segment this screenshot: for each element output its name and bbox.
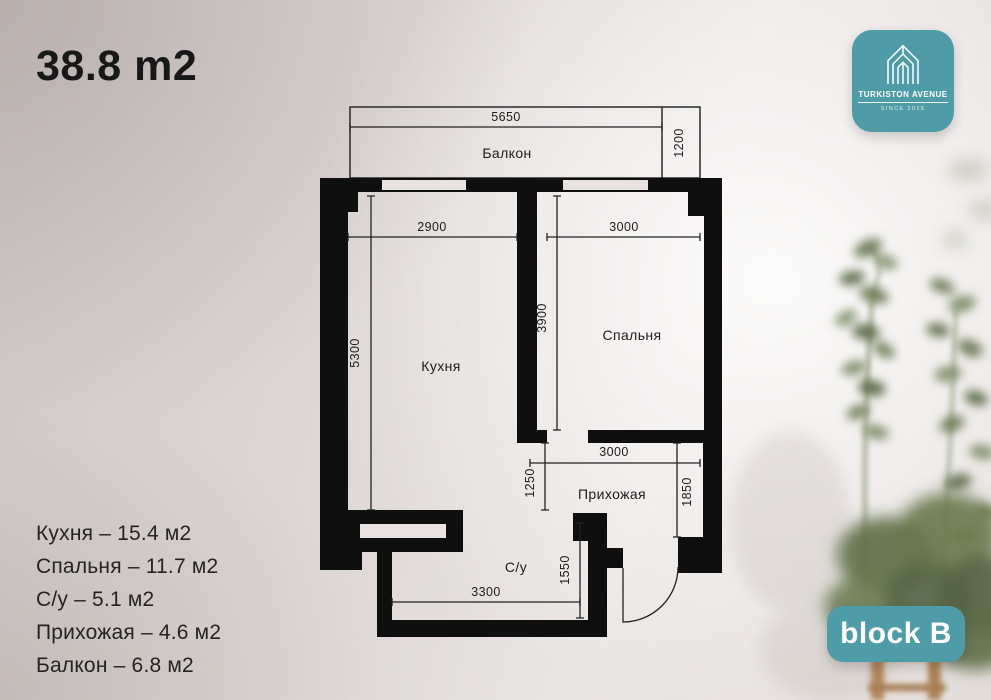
dim-kitchen-length: 5300 xyxy=(348,338,362,367)
dim-line-bedroom-width xyxy=(547,233,700,241)
dim-hallway-length: 1850 xyxy=(680,477,694,506)
dim-hallway-width: 3000 xyxy=(599,445,628,459)
legend-item-kitchen: Кухня – 15.4 м2 xyxy=(36,522,221,546)
dim-balcony-depth: 1200 xyxy=(672,128,686,157)
dim-line-hallway-width xyxy=(530,459,700,467)
dim-line-bathroom-width xyxy=(392,598,580,606)
dim-line-kitchen-length xyxy=(367,196,375,510)
dim-corridor-width: 1250 xyxy=(523,468,537,497)
block-badge: block B xyxy=(827,606,965,662)
room-label-bedroom: Спальня xyxy=(602,327,661,343)
brand-logo: TURKISTON AVENUE SINCE 2015 xyxy=(852,30,954,132)
dim-line-kitchen-width xyxy=(348,233,517,241)
window-kitchen-bottom xyxy=(360,524,446,538)
dim-bedroom-width: 3000 xyxy=(609,220,638,234)
building-icon xyxy=(878,40,928,88)
dim-kitchen-width: 2900 xyxy=(417,220,446,234)
dim-bedroom-length: 3900 xyxy=(535,303,549,332)
entrance-door-swing xyxy=(623,567,678,622)
dim-balcony-width: 5650 xyxy=(491,110,520,124)
room-label-hallway: Прихожая xyxy=(578,486,646,502)
dim-bathroom-width: 3300 xyxy=(471,585,500,599)
room-label-kitchen: Кухня xyxy=(421,358,460,374)
dim-bathroom-length: 1550 xyxy=(558,555,572,584)
balcony-outline xyxy=(350,107,700,178)
legend-item-balcony: Балкон – 6.8 м2 xyxy=(36,654,221,678)
dim-line-bedroom-length xyxy=(553,196,561,430)
legend-item-bathroom: С/у – 5.1 м2 xyxy=(36,588,221,612)
brand-name: TURKISTON AVENUE xyxy=(858,90,947,103)
room-label-balcony: Балкон xyxy=(482,145,531,161)
legend-item-hallway: Прихожая – 4.6 м2 xyxy=(36,621,221,645)
legend-item-bedroom: Спальня – 11.7 м2 xyxy=(36,555,221,579)
dim-line-corridor-width xyxy=(541,443,549,510)
brand-since: SINCE 2015 xyxy=(881,106,926,112)
windows xyxy=(360,180,648,538)
flyer: { "title": "38.8 m2", "logo": { "brand":… xyxy=(0,0,991,700)
room-area-legend: Кухня – 15.4 м2 Спальня – 11.7 м2 С/у – … xyxy=(36,522,221,687)
window-kitchen xyxy=(382,180,466,190)
dim-line-balcony-width xyxy=(350,123,662,131)
room-label-bathroom: С/у xyxy=(505,559,527,575)
window-bedroom xyxy=(563,180,648,190)
area-title: 38.8 m2 xyxy=(36,42,197,91)
